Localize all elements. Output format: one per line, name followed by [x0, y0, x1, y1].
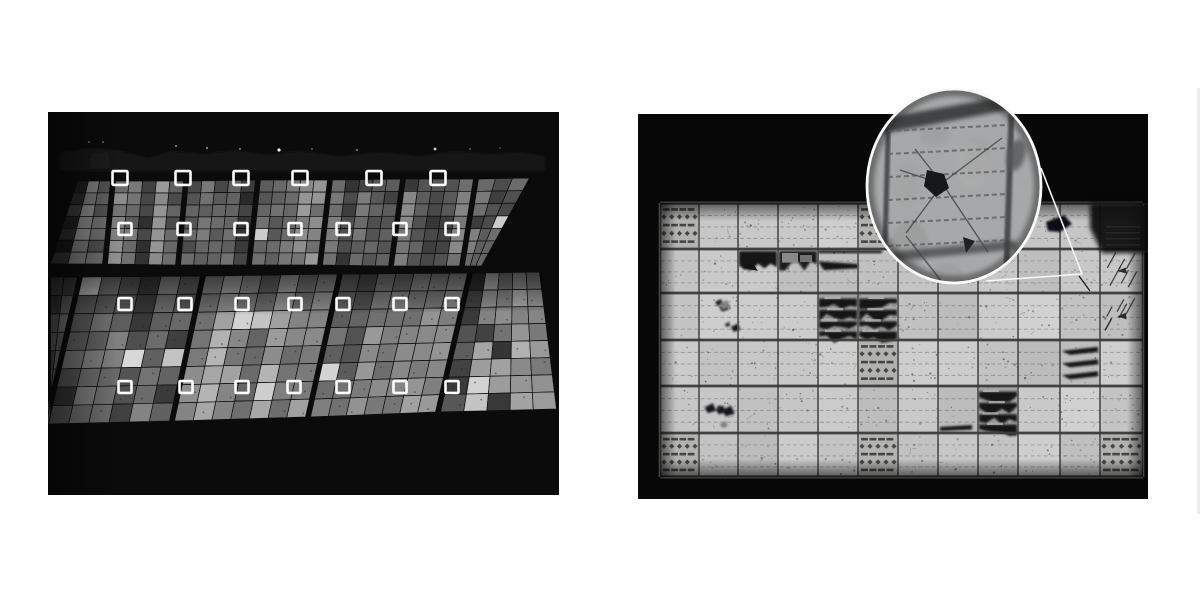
panel-cell — [211, 217, 226, 229]
dirt-speck — [339, 406, 341, 408]
panel-cell — [304, 253, 319, 265]
dirt-speck — [452, 317, 454, 319]
panel-cell — [153, 385, 177, 404]
panel-cell — [291, 381, 314, 399]
module-cell — [778, 386, 818, 433]
panel-cell — [161, 349, 185, 368]
dirt-speck — [396, 336, 398, 338]
panel-cell — [529, 323, 548, 341]
panel-cell — [400, 204, 415, 216]
module-cell — [898, 340, 938, 386]
panel-cell — [137, 229, 152, 241]
dirt-speck — [452, 386, 454, 388]
distant-light — [469, 148, 471, 150]
panel-cell — [328, 204, 343, 216]
dirt-speck — [179, 320, 181, 322]
panel-cell — [151, 229, 166, 241]
distant-light — [277, 148, 280, 151]
panel-cell — [221, 241, 235, 253]
panel-cell — [532, 392, 556, 410]
dirt-speck — [523, 397, 525, 399]
panel-cell — [136, 241, 151, 253]
panel-cell — [379, 229, 394, 241]
panel-cell — [226, 192, 241, 204]
panel-cell — [258, 192, 273, 204]
dirt-speck — [344, 371, 346, 373]
dirt-speck — [414, 391, 416, 393]
panel-cell — [238, 204, 253, 216]
panel-cell — [254, 229, 269, 241]
figure-canvas — [0, 0, 1200, 600]
panel-cell — [384, 191, 399, 204]
panel-cell — [292, 241, 307, 253]
panel-cell — [395, 241, 410, 253]
panel-cell — [266, 241, 281, 253]
dirt-speck — [310, 370, 312, 372]
module-cell — [818, 386, 858, 433]
module-cell — [778, 340, 818, 386]
dirt-speck — [459, 404, 461, 406]
panel-cell — [425, 216, 440, 228]
panel-cell — [255, 216, 270, 228]
panel-cell — [511, 324, 529, 342]
panel-cell — [370, 192, 385, 204]
panel-cell — [377, 241, 392, 254]
panel-cell — [448, 241, 463, 253]
dirt-speck — [275, 338, 277, 340]
panel-cell — [209, 229, 223, 241]
dirt-speck — [525, 380, 527, 382]
panel-cell — [309, 216, 324, 228]
distant-light — [434, 148, 437, 151]
distant-light — [239, 148, 241, 150]
panel-cell — [287, 399, 310, 417]
panel-cell — [212, 205, 227, 217]
solar-farm-photo — [48, 112, 559, 495]
dirt-speck — [254, 356, 256, 358]
panel-cell — [154, 193, 169, 205]
module-cell — [1018, 293, 1060, 340]
panel-cell — [122, 240, 137, 252]
panel-cell — [298, 192, 313, 204]
panel-cell — [469, 359, 491, 377]
module-cell — [1018, 340, 1060, 386]
dirt-speck — [544, 361, 546, 363]
dirt-speck — [495, 373, 497, 375]
panel-cell — [185, 205, 199, 217]
panel-cell — [307, 229, 322, 241]
dirt-speck — [368, 350, 370, 352]
panel-cell — [435, 241, 450, 253]
panel-cell — [349, 253, 364, 265]
distant-light — [356, 149, 358, 151]
dirt-speck — [487, 349, 489, 351]
dirt-speck — [413, 372, 415, 374]
dirt-speck — [431, 318, 433, 320]
panel-cell — [278, 253, 293, 265]
dirt-speck — [541, 318, 543, 320]
dirt-speck — [214, 356, 216, 358]
dirt-speck — [165, 325, 167, 327]
dirt-speck — [237, 353, 239, 355]
panel-cell — [299, 346, 322, 364]
panel-cell — [367, 216, 382, 228]
panel-cell — [182, 241, 196, 253]
panel-cell — [165, 330, 189, 348]
panel-cell — [457, 325, 478, 343]
panel-cell — [310, 204, 325, 216]
panel-cell — [297, 204, 312, 216]
dirt-speck — [342, 315, 344, 317]
panel-cell — [291, 253, 306, 265]
dirt-speck — [157, 335, 159, 337]
panel-cell — [441, 394, 467, 412]
panel-cell — [336, 253, 351, 265]
dirt-speck — [150, 358, 152, 360]
panel-cell — [365, 229, 380, 241]
panel-cell — [472, 342, 493, 360]
panel-cell — [331, 180, 346, 192]
panel-cell — [441, 204, 456, 216]
panel-cell — [410, 229, 425, 241]
panel-cell — [157, 367, 181, 386]
dirt-speck — [329, 355, 331, 357]
panel-cell — [126, 205, 141, 217]
dirt-speck — [394, 403, 396, 405]
panel-cell — [213, 192, 228, 204]
panel-cell — [337, 241, 352, 253]
dirt-speck — [474, 382, 476, 384]
panel-cell — [283, 204, 298, 216]
panel-cell — [464, 394, 489, 412]
panel-cell — [364, 241, 379, 253]
panel-cell — [458, 179, 474, 191]
panel-cell — [162, 253, 177, 265]
panel-cell — [128, 181, 143, 193]
panel-cell — [153, 205, 168, 217]
dirt-speck — [517, 348, 519, 350]
defect-blob — [818, 251, 882, 254]
distant-light — [499, 147, 501, 149]
panel-cell — [429, 191, 444, 203]
panel-cell — [510, 375, 532, 393]
panel-cell — [412, 216, 427, 228]
defect-blob — [782, 253, 798, 263]
panel-cell — [271, 192, 286, 204]
panel-cell — [323, 253, 338, 265]
panel-cell — [267, 229, 282, 241]
panel-cell — [253, 241, 268, 253]
panel-cell — [402, 191, 417, 203]
dirt-speck — [409, 317, 411, 319]
dirt-speck — [140, 345, 142, 347]
panel-cell — [511, 341, 531, 359]
panel-cell — [140, 193, 155, 205]
panel-cell — [225, 204, 240, 216]
panel-cell — [311, 192, 326, 204]
panel-cell — [324, 241, 339, 253]
left-vignette — [48, 112, 118, 495]
dirt-speck — [202, 358, 204, 360]
panel-cell — [424, 229, 439, 241]
dirt-speck — [480, 399, 482, 401]
panel-cell — [149, 241, 164, 253]
panel-cell — [186, 193, 201, 205]
panel-cell — [121, 252, 136, 264]
dirt-speck — [382, 352, 384, 354]
panel-cell — [416, 191, 431, 203]
panel-cell — [443, 191, 458, 203]
module-cell — [858, 386, 898, 433]
panel-cell — [369, 204, 384, 216]
panel-cell — [148, 253, 163, 265]
panel-cell — [214, 180, 229, 192]
panel-cell — [279, 241, 294, 253]
panel-cell — [240, 192, 255, 204]
distant-light — [311, 148, 313, 150]
panel-cell — [155, 181, 170, 193]
panel-cell — [198, 205, 213, 217]
module-cell — [738, 386, 778, 433]
panel-cell — [375, 253, 390, 266]
dirt-speck — [295, 351, 297, 353]
module-cell — [1060, 293, 1100, 340]
panel-cell — [201, 181, 216, 193]
dirt-speck — [506, 319, 508, 321]
panel-cell — [139, 205, 154, 217]
module-cell — [938, 293, 978, 340]
panel-cell — [252, 253, 267, 265]
panel-cell — [420, 254, 435, 266]
panel-cell — [313, 180, 328, 192]
module-cell — [699, 293, 738, 340]
panel-cell — [207, 253, 221, 265]
dirt-speck — [351, 411, 353, 413]
panel-cell — [303, 328, 326, 346]
panel-cell — [166, 205, 181, 217]
module-cell — [738, 340, 778, 386]
dirt-speck — [545, 350, 547, 352]
panel-cell — [306, 241, 321, 253]
panel-cell — [273, 180, 288, 192]
distant-light — [206, 147, 208, 149]
panel-cell — [330, 192, 345, 204]
panel-cell — [220, 253, 234, 265]
module-scene — [638, 85, 1148, 499]
dirt-speck — [141, 398, 143, 400]
panel-cell — [414, 204, 429, 216]
panel-cell — [265, 253, 280, 265]
panel-cell — [510, 392, 533, 410]
panel-cell — [345, 180, 360, 192]
panel-cell — [357, 192, 372, 204]
panel-cell — [531, 358, 553, 376]
dirt-speck — [247, 323, 249, 325]
panel-cell — [418, 395, 440, 413]
distant-light — [175, 145, 177, 147]
panel-cell — [152, 217, 167, 229]
dirt-speck — [119, 399, 121, 401]
panel-cell — [493, 324, 512, 342]
panel-cell — [355, 204, 370, 216]
panel-cell — [453, 342, 475, 360]
module-cell — [978, 340, 1018, 386]
dirt-speck — [284, 410, 286, 412]
module-photo — [638, 85, 1148, 499]
panel-cell — [197, 217, 211, 229]
panel-cell — [434, 325, 456, 343]
panel-cell — [163, 241, 178, 253]
dirt-speck — [239, 340, 241, 342]
panel-cell — [127, 193, 142, 205]
dirt-speck — [199, 322, 201, 324]
panel-cell — [475, 324, 495, 342]
panel-cell — [270, 204, 285, 216]
panel-cell — [342, 204, 357, 216]
panel-cell — [142, 181, 157, 193]
pattern-cell — [859, 341, 897, 385]
dirt-speck — [221, 343, 223, 345]
panel-cell — [343, 192, 358, 204]
module-cell — [1018, 386, 1060, 433]
panel-cell — [362, 253, 377, 266]
dirt-speck — [322, 393, 324, 395]
panel-module — [323, 179, 401, 266]
panel-cell — [200, 193, 215, 205]
panel-cell — [422, 377, 444, 395]
panel-cell — [408, 241, 423, 253]
module-cell — [738, 293, 778, 340]
dirt-speck — [304, 391, 306, 393]
panel-cell — [135, 252, 150, 264]
dirt-speck — [501, 330, 503, 332]
dirt-speck — [380, 367, 382, 369]
panel-cell — [382, 204, 397, 216]
panel-cell — [352, 229, 367, 241]
dirt-speck — [316, 341, 318, 343]
panel-cell — [354, 216, 369, 228]
dirt-speck — [122, 344, 124, 346]
dirt-speck — [427, 408, 429, 410]
dirt-speck — [152, 373, 154, 375]
panel-cell — [295, 363, 318, 381]
panel-cell — [233, 253, 247, 265]
dirt-speck — [410, 403, 412, 405]
panel-cell — [404, 179, 419, 191]
panel-cell — [138, 217, 153, 229]
module-cell — [778, 293, 818, 340]
dirt-speck — [203, 411, 205, 413]
panel-cell — [433, 254, 448, 266]
panel-cell — [490, 359, 511, 377]
farm-scene — [48, 112, 559, 495]
module-cell — [1018, 249, 1060, 293]
module-cell — [818, 249, 858, 293]
module-cell — [978, 293, 1018, 340]
panel-cell — [426, 360, 448, 378]
panel-cell — [269, 216, 284, 228]
panel-cell — [511, 358, 532, 376]
module-cell — [898, 293, 938, 340]
module-cell — [898, 386, 938, 433]
panel-cell — [532, 375, 555, 393]
dirt-speck — [230, 397, 232, 399]
dirt-speck — [484, 318, 486, 320]
panel-cell — [385, 179, 400, 192]
panel-cell — [427, 204, 442, 216]
panel-cell — [530, 341, 550, 359]
dirt-speck — [406, 333, 408, 335]
panel-cell — [466, 376, 490, 394]
panel-cell — [430, 343, 452, 361]
panel-cell — [487, 393, 511, 411]
panel-cell — [285, 192, 300, 204]
panel-cell — [196, 229, 210, 241]
panel-cell — [195, 241, 209, 253]
dirt-speck — [364, 389, 366, 391]
panel-cell — [456, 191, 471, 203]
panel-cell — [492, 341, 512, 359]
panel-cell — [394, 254, 409, 266]
panel-cell — [407, 254, 422, 266]
panel-cell — [257, 204, 272, 216]
panel-cell — [259, 180, 274, 192]
panel-cell — [149, 403, 173, 422]
panel-cell — [194, 253, 208, 265]
panel-cell — [449, 359, 473, 377]
module-cell — [938, 340, 978, 386]
panel-cell — [181, 253, 195, 265]
panel-cell — [454, 204, 469, 216]
panel-cell — [488, 376, 510, 394]
panel-cell — [168, 193, 183, 205]
panel-cell — [422, 241, 437, 253]
panel-cell — [350, 241, 365, 253]
panel-cell — [208, 241, 222, 253]
dirt-speck — [439, 353, 441, 355]
dirt-speck — [445, 329, 447, 331]
dirt-speck — [167, 390, 169, 392]
dirt-speck — [466, 355, 468, 357]
dirt-speck — [194, 391, 196, 393]
dirt-speck — [302, 413, 304, 415]
panel-cell — [446, 254, 461, 266]
dirt-speck — [174, 339, 176, 341]
module-cell — [699, 340, 738, 386]
dirt-speck — [461, 369, 463, 371]
dirt-speck — [142, 326, 144, 328]
panel-cell — [235, 241, 250, 253]
